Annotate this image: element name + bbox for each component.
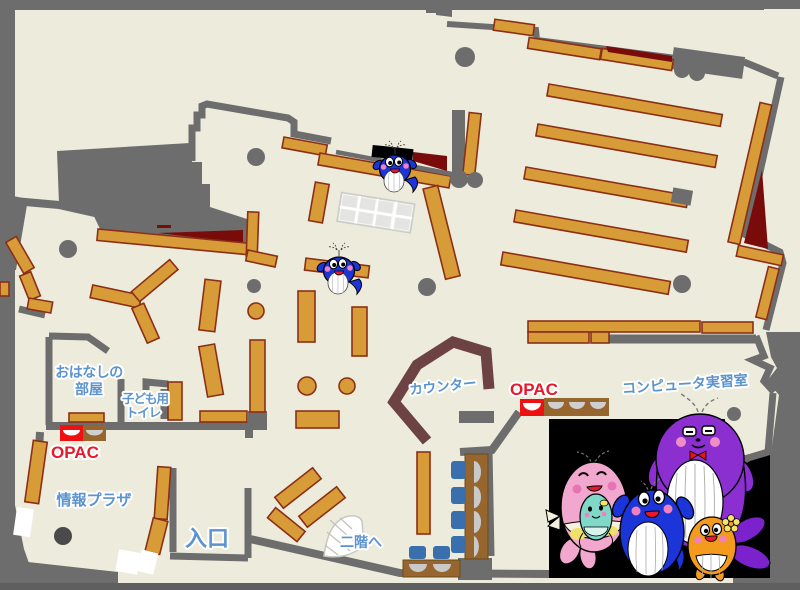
svg-text:OPAC: OPAC: [51, 443, 99, 462]
svg-text:二階へ: 二階へ: [340, 534, 382, 550]
svg-text:トイレ: トイレ: [126, 406, 161, 420]
svg-text:OPAC: OPAC: [510, 380, 558, 399]
svg-text:おはなしの: おはなしの: [55, 364, 123, 380]
svg-text:部屋: 部屋: [75, 381, 103, 397]
svg-text:子ども用: 子ども用: [122, 392, 169, 406]
svg-text:入口: 入口: [185, 526, 229, 551]
svg-text:情報プラザ: 情報プラザ: [56, 491, 131, 509]
